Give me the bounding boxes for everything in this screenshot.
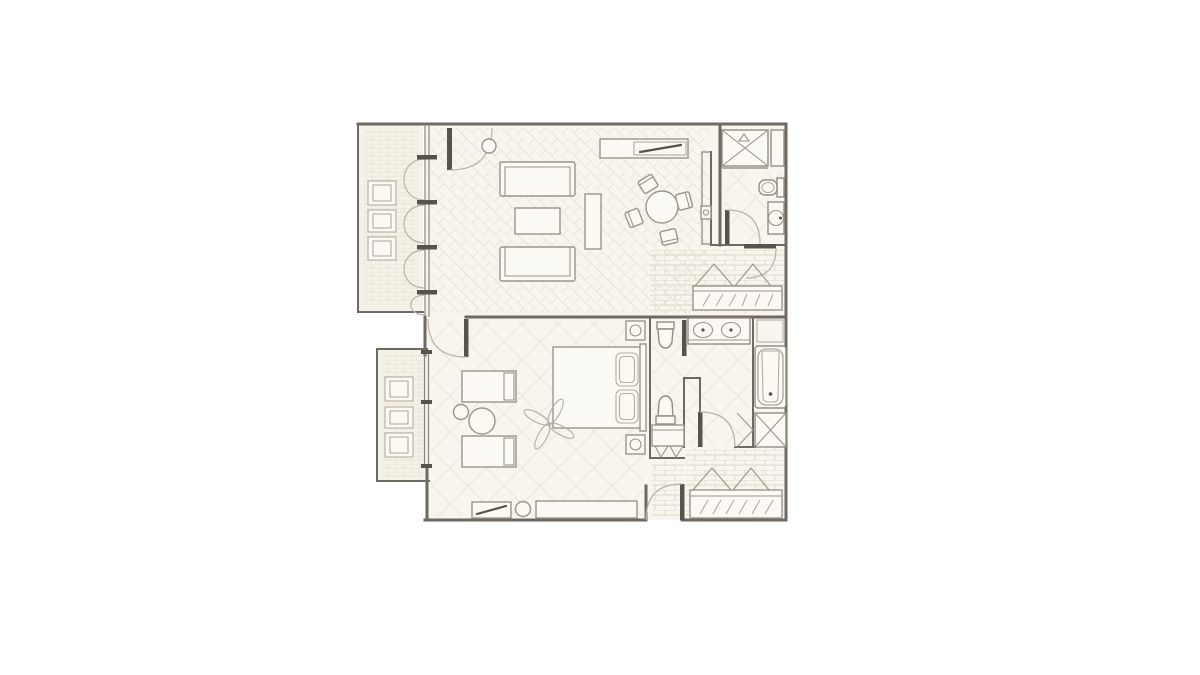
drain [769, 392, 773, 396]
pillow [616, 353, 638, 386]
double-sink-vanity [688, 318, 750, 344]
chaise-bench-north [462, 371, 516, 402]
floor-plan-drawing [0, 0, 1200, 675]
stool [516, 502, 531, 517]
lower-terrace [385, 377, 413, 457]
plant [482, 139, 496, 153]
round-side-table-large [469, 408, 495, 434]
outdoor-chair [385, 433, 413, 457]
outdoor-chair [368, 181, 396, 205]
round-side-table-small [454, 405, 469, 420]
shower-stall [722, 130, 768, 166]
outdoor-chair [368, 237, 396, 260]
luggage-bench [693, 286, 782, 310]
entry-floor-pattern-2 [652, 461, 684, 516]
wc-partition [682, 320, 687, 356]
floor-plan-page: Hotel suite floor plan [0, 0, 1200, 675]
side-console [585, 194, 601, 249]
powder-sink [768, 202, 784, 234]
pillow [616, 390, 638, 423]
outdoor-chair [385, 377, 413, 401]
nightstand-south [626, 435, 645, 454]
dining-table [646, 191, 678, 223]
luggage-bench [690, 490, 782, 518]
tv-sideboard [600, 139, 688, 158]
outdoor-chair [385, 407, 413, 428]
upper-terrace [368, 181, 396, 260]
wall-fixture [701, 206, 711, 219]
coffee-table [515, 208, 560, 234]
shelf-cabinet [771, 130, 784, 166]
powder-toilet [759, 178, 784, 197]
dresser [536, 501, 637, 518]
sofa-north [500, 162, 575, 196]
bathtub [755, 346, 786, 408]
nightstand-north [626, 321, 645, 340]
outdoor-chair [368, 210, 396, 232]
headboard [640, 344, 646, 431]
wc-toilet [657, 322, 674, 348]
chaise-bench-south [462, 436, 516, 467]
tv-cabinet [472, 502, 511, 518]
double-bed [553, 344, 646, 431]
sofa-south [500, 247, 575, 281]
